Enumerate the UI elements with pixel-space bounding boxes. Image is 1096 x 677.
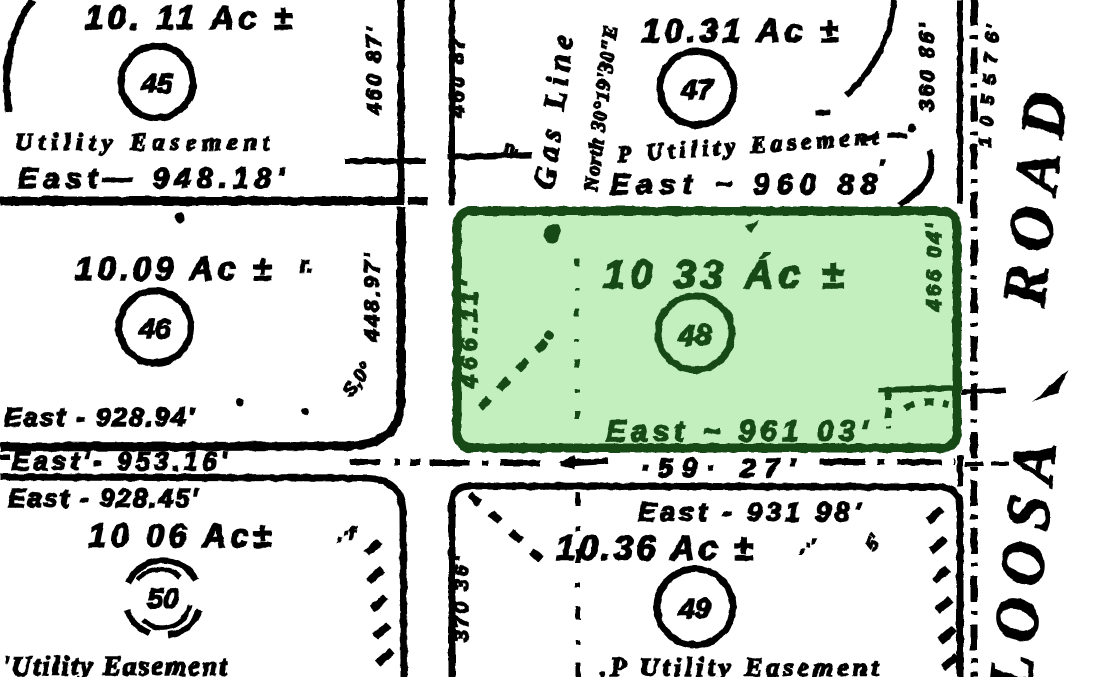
svg-text:466.11': 466.11' xyxy=(456,276,483,389)
svg-text:45: 45 xyxy=(140,68,173,99)
svg-text:48: 48 xyxy=(677,319,712,352)
svg-text:466 04': 466 04' xyxy=(923,221,946,312)
svg-text:,P Utility Easement: ,P Utility Easement xyxy=(599,653,882,677)
svg-text:Utility Easement: Utility Easement xyxy=(15,130,276,156)
svg-text:'Utility Easement: 'Utility Easement xyxy=(2,651,229,677)
svg-text:,·f: ,·f xyxy=(337,524,357,544)
svg-text:10.31 Ac ±: 10.31 Ac ± xyxy=(642,12,842,49)
svg-text:East'- 953.16': East'- 953.16' xyxy=(12,446,231,476)
svg-text:460 87': 460 87' xyxy=(446,27,469,118)
svg-text:460 87': 460 87' xyxy=(363,25,386,116)
svg-text:East - 928.94': East - 928.94' xyxy=(4,402,196,432)
svg-text:47: 47 xyxy=(680,74,714,105)
svg-text:50: 50 xyxy=(147,583,179,614)
svg-text:East— 948.18': East— 948.18' xyxy=(18,163,290,195)
svg-text:10.36 Ac ±: 10.36 Ac ± xyxy=(556,529,756,568)
svg-text:East - 928.45': East - 928.45' xyxy=(8,483,200,513)
svg-text:·59· 27': ·59· 27' xyxy=(640,453,804,483)
svg-text:n.: n. xyxy=(505,139,518,156)
svg-text:East - 931 98': East - 931 98' xyxy=(638,497,864,527)
svg-text:10 06 Ac±: 10 06 Ac± xyxy=(88,517,275,554)
svg-text:East ~ 961 03': East ~ 961 03' xyxy=(606,415,872,448)
svg-text:49: 49 xyxy=(678,593,711,624)
svg-text:46: 46 xyxy=(138,313,171,344)
svg-text:East ~ 960 88: East ~ 960 88 xyxy=(610,169,884,201)
svg-text:370 36': 370 36' xyxy=(451,555,473,642)
svg-text:r.: r. xyxy=(300,255,312,277)
svg-text:10.09 Ac ±: 10.09 Ac ± xyxy=(75,250,275,287)
svg-text:10. 11 Ac ±: 10. 11 Ac ± xyxy=(85,0,296,36)
svg-text:10 33 Ác ±: 10 33 Ác ± xyxy=(603,252,848,297)
svg-text:360 86': 360 86' xyxy=(916,21,939,111)
svg-text:,·': ,·' xyxy=(799,536,816,556)
svg-text:448.97': 448.97' xyxy=(361,251,384,342)
